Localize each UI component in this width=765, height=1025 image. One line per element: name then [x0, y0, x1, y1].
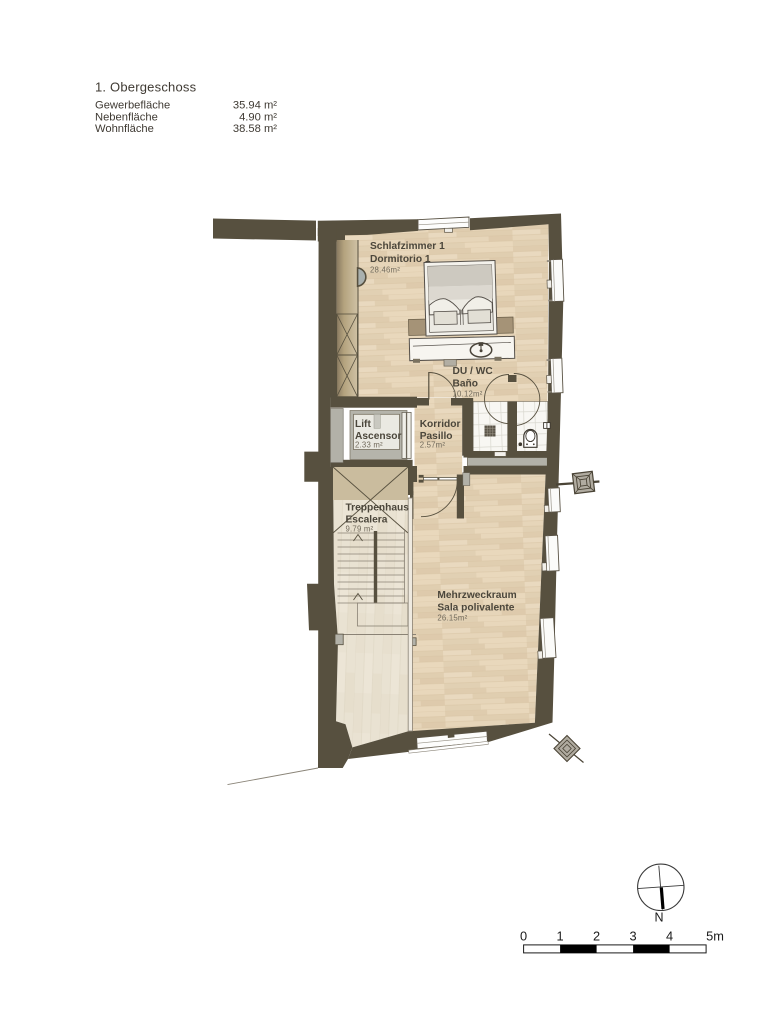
svg-text:Treppenhaus: Treppenhaus: [346, 503, 410, 514]
svg-text:2.33 m²: 2.33 m²: [355, 441, 383, 450]
svg-text:Nebenfläche: Nebenfläche: [95, 111, 158, 123]
svg-text:35.94 m²: 35.94 m²: [233, 100, 277, 112]
svg-text:28.46m²: 28.46m²: [370, 266, 400, 275]
svg-text:DU / WC: DU / WC: [453, 366, 494, 377]
svg-text:Mehrzweckraum: Mehrzweckraum: [437, 590, 516, 601]
svg-text:Sala polivalente: Sala polivalente: [437, 603, 514, 614]
svg-text:2.57m²: 2.57m²: [420, 441, 446, 450]
svg-text:26.15m²: 26.15m²: [437, 614, 467, 623]
svg-text:Korridor: Korridor: [420, 419, 461, 430]
svg-text:4.90 m²: 4.90 m²: [239, 111, 277, 123]
svg-text:Baño: Baño: [453, 379, 478, 390]
svg-text:Dormitorio 1: Dormitorio 1: [370, 254, 431, 265]
svg-text:9.79 m²: 9.79 m²: [346, 525, 374, 534]
svg-text:Schlafzimmer 1: Schlafzimmer 1: [370, 241, 445, 252]
svg-text:N: N: [655, 911, 664, 925]
svg-text:1. Obergeschoss: 1. Obergeschoss: [95, 80, 197, 95]
svg-text:4: 4: [666, 929, 673, 944]
svg-text:1: 1: [557, 929, 564, 944]
svg-text:Lift: Lift: [355, 419, 371, 430]
svg-text:10.12m²: 10.12m²: [453, 390, 483, 399]
svg-text:Gewerbefläche: Gewerbefläche: [95, 100, 170, 112]
svg-text:3: 3: [630, 929, 637, 944]
svg-text:Wohnfläche: Wohnfläche: [95, 123, 154, 135]
svg-text:0: 0: [520, 929, 527, 944]
svg-text:2: 2: [593, 929, 600, 944]
svg-text:5m: 5m: [706, 929, 724, 944]
svg-text:38.58 m²: 38.58 m²: [233, 123, 277, 135]
